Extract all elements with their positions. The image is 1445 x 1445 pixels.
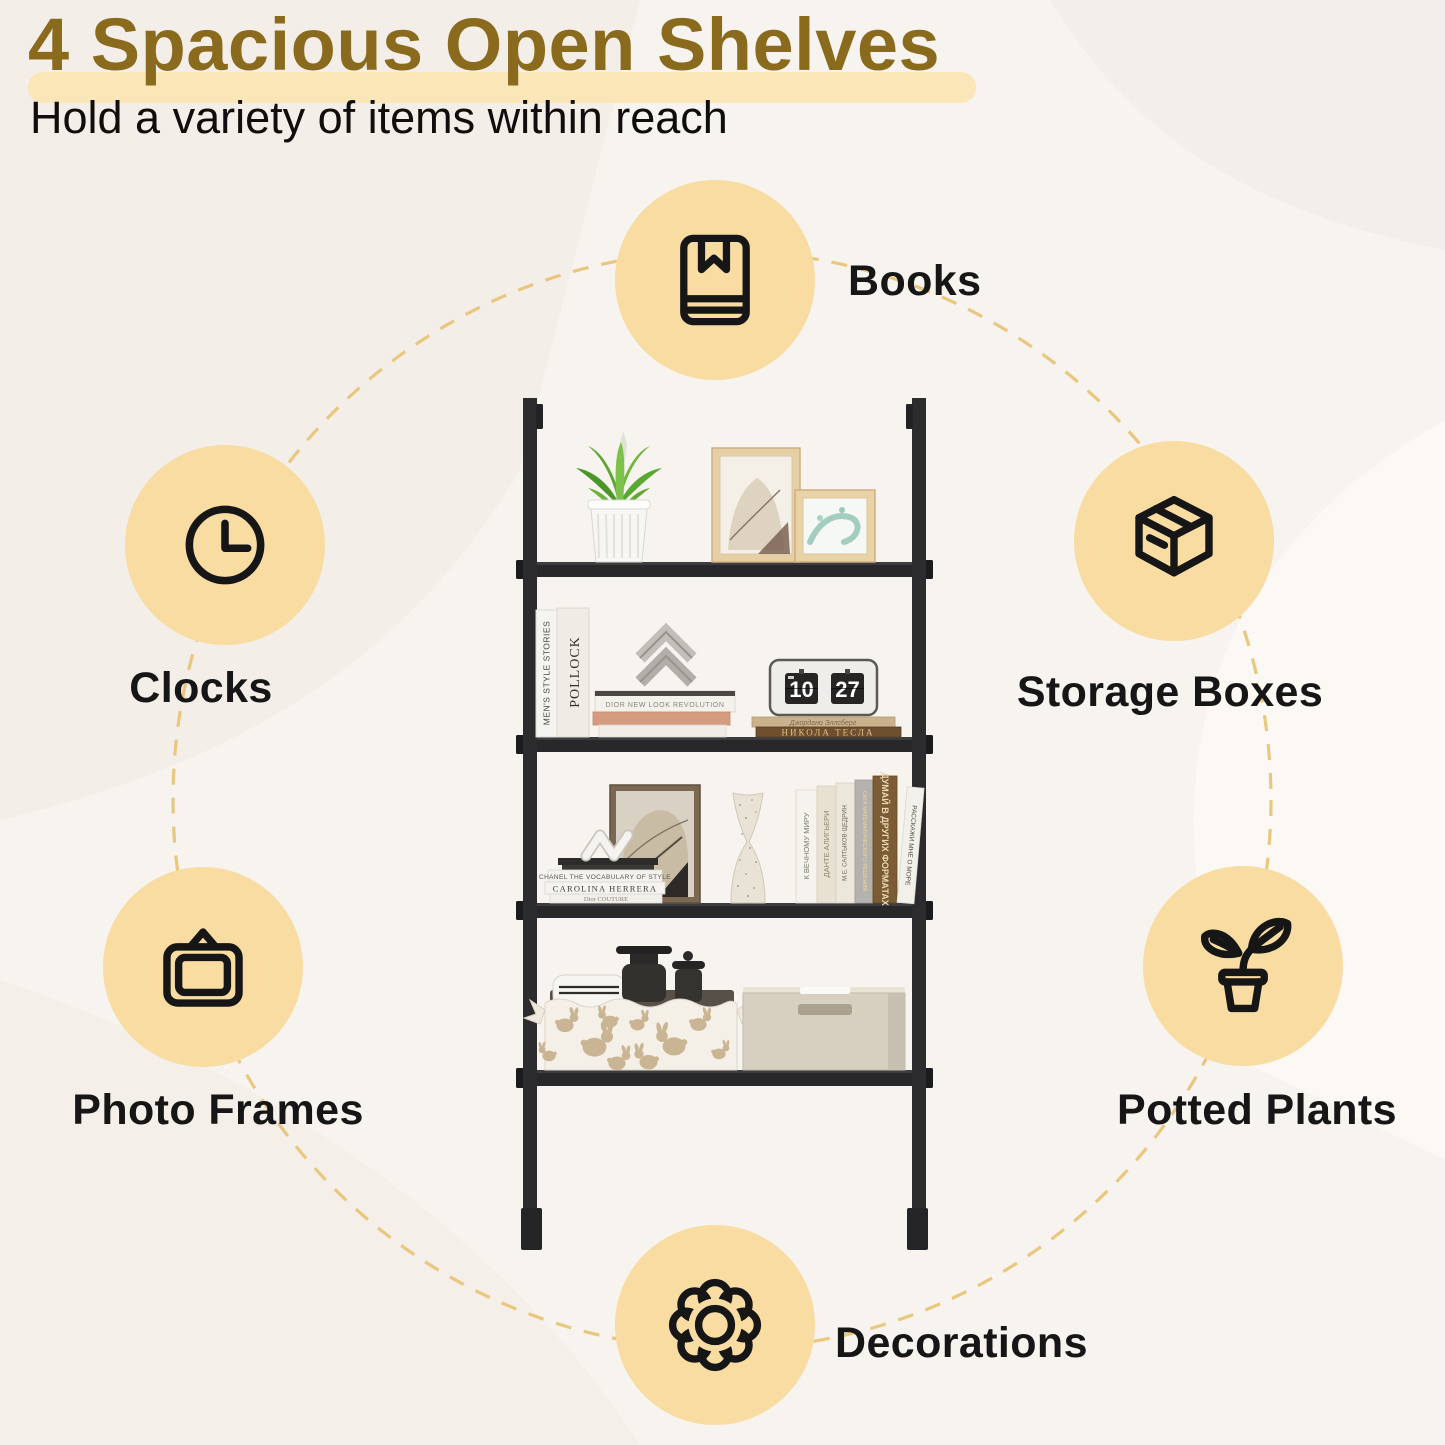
book-title-text: Dior COUTURE: [584, 896, 628, 903]
book-spine-text: САГА МАТЕМАТИЧЕСКОГО РЕШЕНИЯ: [861, 791, 867, 891]
tier3-speckled-vase: [731, 793, 765, 903]
page-title: 4 Spacious Open Shelves: [28, 2, 940, 87]
feature-label-books: Books: [848, 260, 981, 303]
feature-label-decorations: Decorations: [835, 1322, 1088, 1365]
tier4-fabric-basket: [524, 946, 758, 1070]
book-spine-text: ДАНТЕ АЛИГЬЕРИ: [822, 810, 831, 877]
feature-circle-photo-frames: [103, 867, 303, 1067]
page-subtitle: Hold a variety of items within reach: [30, 92, 728, 144]
book-title-text: DIOR NEW LOOK REVOLUTION: [605, 702, 724, 709]
tier2-flip-clock: 10 27: [770, 660, 877, 715]
infographic-canvas: 4 Spacious Open Shelves Hold a variety o…: [0, 0, 1445, 1445]
book-spine-text: М.Е. САЛТЫКОВ-ЩЕДРИН: [843, 805, 849, 881]
feature-label-storage-boxes: Storage Boxes: [1017, 671, 1323, 714]
book-icon: [663, 228, 767, 332]
feature-circle-potted-plants: [1143, 866, 1343, 1066]
feature-label-potted-plants: Potted Plants: [1117, 1089, 1397, 1132]
feature-circle-clocks: [125, 445, 325, 645]
tier2-book-stack: DIOR NEW LOOK REVOLUTION: [593, 632, 735, 737]
book-spine-text: К ВЕЧНОМУ МИРУ: [802, 812, 811, 879]
wall-shelf-illustration: MEN'S STYLE STORIES POLLOCK DIOR NEW LOO…: [490, 390, 950, 1260]
feature-circle-books: [615, 180, 815, 380]
tier1-potted-plant: [576, 431, 662, 562]
tier3-spine-books: К ВЕЧНОМУ МИРУ ДАНТЕ АЛИГЬЕРИ М.Е. САЛТЫ…: [796, 772, 924, 906]
book-spine-text: ДУМАЙ В ДРУГИХ ФОРМАТАХ: [880, 772, 891, 906]
book-spine-text: MEN'S STYLE STORIES: [542, 621, 552, 726]
book-title-text: CAROLINA HERRERA: [553, 884, 657, 894]
tier4-storage-box: [743, 987, 905, 1070]
feature-label-clocks: Clocks: [129, 667, 272, 710]
box-icon: [1121, 488, 1227, 594]
book-title-text: Джордано Эллсберг: [789, 719, 857, 727]
flip-clock-hour: 10: [789, 677, 813, 702]
picture-frame-icon: [150, 914, 256, 1020]
flower-icon: [662, 1272, 768, 1378]
book-spine-text: POLLOCK: [568, 636, 583, 708]
feature-label-photo-frames: Photo Frames: [72, 1089, 364, 1132]
feature-circle-decorations: [615, 1225, 815, 1425]
book-title-text: CHANEL THE VOCABULARY OF STYLE: [539, 874, 671, 881]
potted-plant-icon: [1190, 913, 1296, 1019]
tier2-flat-books: Джордано Эллсберг НИКОЛА ТЕСЛА: [752, 717, 901, 738]
flip-clock-minute: 27: [835, 677, 859, 702]
tier1-photo-frames: [712, 448, 875, 562]
feature-circle-storage-boxes: [1074, 441, 1274, 641]
clock-icon: [171, 491, 279, 599]
plant-leaves: [576, 431, 662, 511]
book-title-text: НИКОЛА ТЕСЛА: [781, 728, 874, 738]
tier2-upright-books: MEN'S STYLE STORIES POLLOCK: [536, 608, 589, 737]
